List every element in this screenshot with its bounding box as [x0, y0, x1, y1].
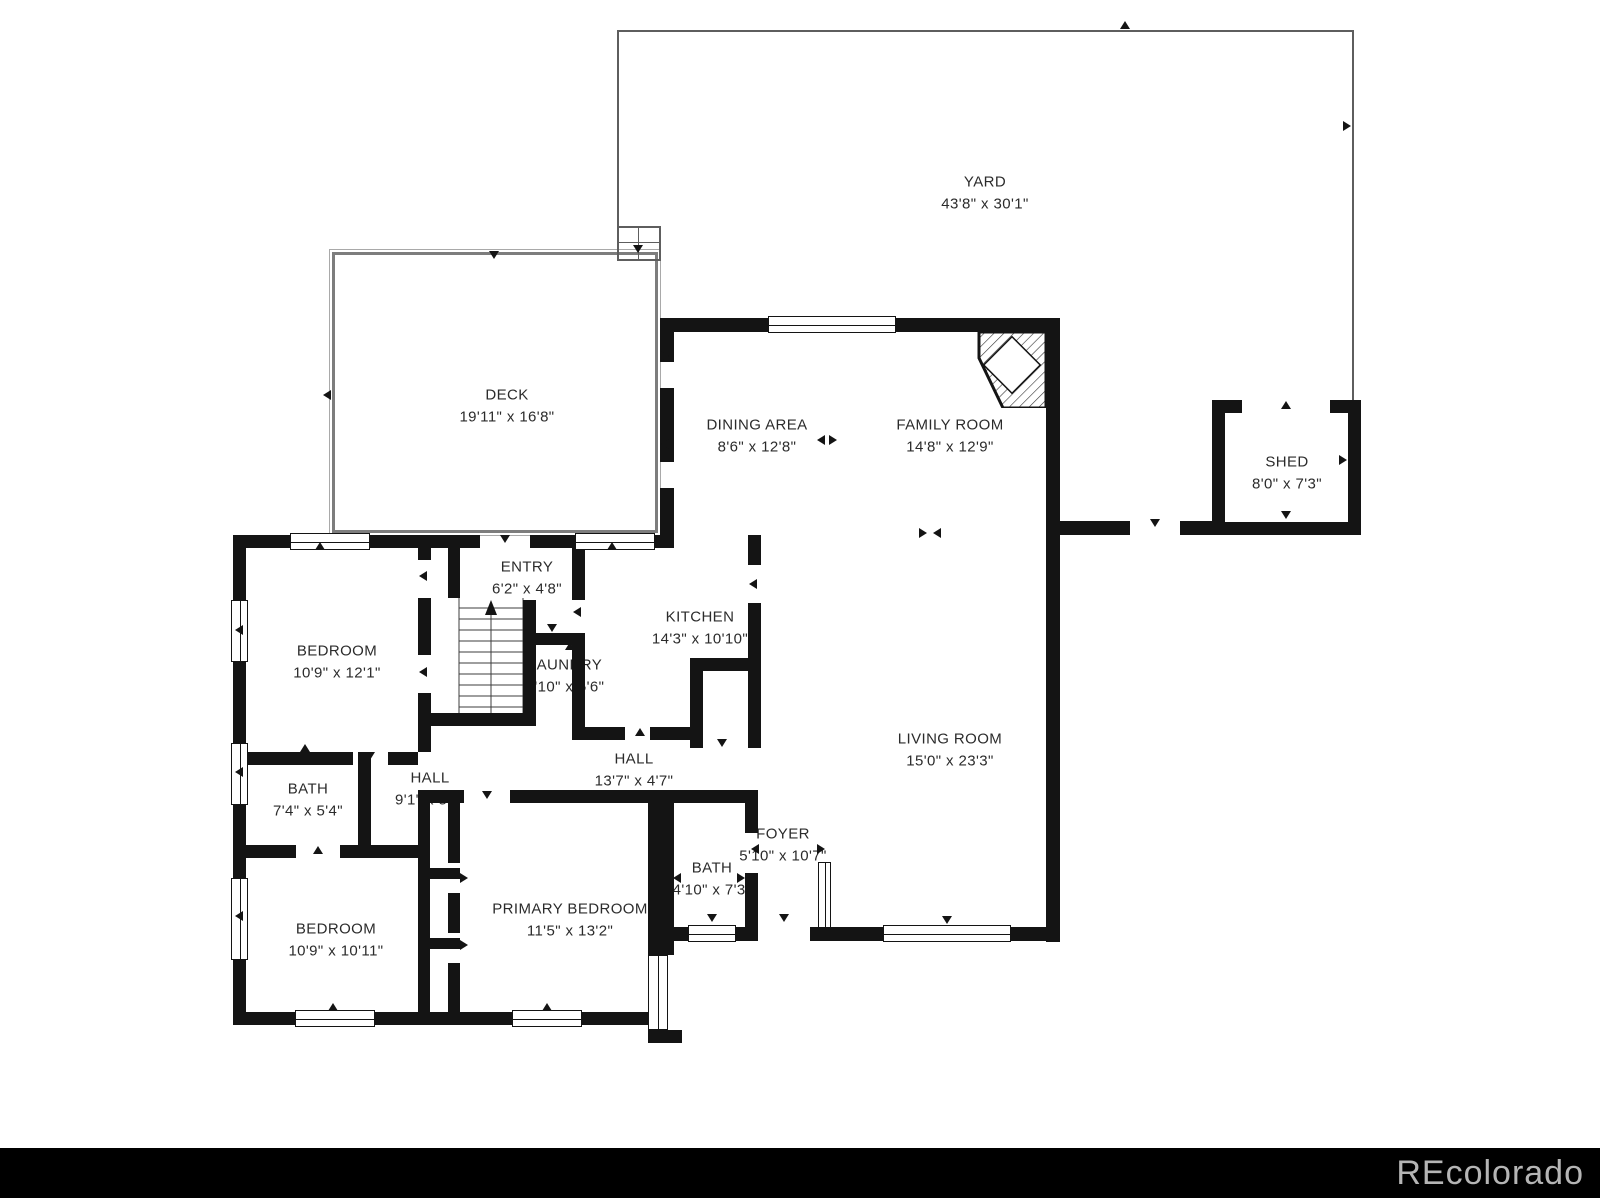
door-marker-left	[419, 667, 427, 677]
room-name: BEDROOM	[237, 640, 437, 662]
room-name: FAMILY ROOM	[830, 414, 1070, 436]
wall-segment	[358, 752, 371, 845]
door-marker-right	[661, 351, 669, 361]
wall-segment	[233, 662, 246, 743]
wall-segment	[736, 927, 758, 941]
wall-segment	[370, 535, 480, 548]
door-marker-left	[573, 607, 581, 617]
wall-segment	[448, 548, 460, 598]
wall-segment	[1212, 522, 1361, 535]
door-marker-up	[1120, 21, 1130, 29]
window	[818, 862, 831, 928]
room-label-laundry: LAUNDRY 5'10" x 5'6"	[500, 654, 630, 698]
wall-segment	[1212, 400, 1225, 535]
yard-outline-line	[617, 226, 661, 228]
wall-segment	[1348, 400, 1361, 535]
wall-segment	[585, 727, 625, 740]
wall-segment	[418, 548, 431, 560]
floorplan-canvas: YARD 43'8" x 30'1" DECK 19'11" x 16'8" D…	[0, 0, 1600, 1200]
room-dims: 19'11" x 16'8"	[402, 406, 612, 428]
wall-segment	[233, 1012, 295, 1025]
wall-segment	[233, 548, 246, 600]
door-marker-up	[328, 1003, 338, 1011]
door-marker-left	[323, 390, 331, 400]
door-marker-left	[419, 571, 427, 581]
room-dims: 10'9" x 10'11"	[236, 940, 436, 962]
door-marker-left	[751, 844, 759, 854]
room-label-family-room: FAMILY ROOM 14'8" x 12'9"	[830, 414, 1070, 458]
wall-segment	[523, 600, 536, 713]
door-marker-down	[717, 739, 727, 747]
room-name: BATH	[238, 778, 378, 800]
door-marker-up	[313, 846, 323, 854]
door-marker-right	[1339, 455, 1347, 465]
door-marker-down	[707, 914, 717, 922]
room-dims: 13'7" x 4'7"	[549, 770, 719, 792]
wall-segment	[745, 803, 758, 833]
room-dims: 14'3" x 10'10"	[600, 628, 800, 650]
yard-outline-line	[638, 226, 639, 261]
door-marker-right	[919, 528, 927, 538]
door-marker-down	[779, 914, 789, 922]
room-label-bath-west: BATH 7'4" x 5'4"	[238, 778, 378, 822]
room-dims: 14'8" x 12'9"	[830, 436, 1070, 458]
door-marker-up	[565, 642, 575, 650]
room-name: LAUNDRY	[500, 654, 630, 676]
yard-outline-line	[617, 242, 661, 243]
door-marker-down	[482, 791, 492, 799]
door-marker-down	[1281, 511, 1291, 519]
door-marker-left	[235, 625, 243, 635]
wall-segment	[418, 598, 431, 655]
wall-segment	[655, 535, 674, 548]
door-marker-right	[1343, 121, 1351, 131]
wall-segment	[448, 893, 460, 933]
room-label-bedroom-lower: BEDROOM 10'9" x 10'11"	[236, 918, 436, 962]
wall-segment	[418, 713, 536, 726]
wall-segment	[418, 868, 460, 879]
door-marker-left	[933, 528, 941, 538]
door-marker-down	[633, 245, 643, 253]
wall-segment	[660, 927, 688, 941]
window	[290, 533, 370, 550]
yard-outline-line	[617, 30, 1354, 32]
wall-segment	[418, 803, 430, 1012]
room-label-kitchen: KITCHEN 14'3" x 10'10"	[600, 606, 800, 650]
window	[512, 1010, 582, 1027]
wall-segment	[510, 790, 660, 803]
wall-segment	[572, 645, 585, 727]
wall-segment	[660, 488, 674, 535]
room-name: KITCHEN	[600, 606, 800, 628]
wall-segment	[418, 938, 460, 949]
door-marker-left	[673, 873, 681, 883]
window	[768, 316, 896, 333]
room-label-deck: DECK 19'11" x 16'8"	[402, 384, 612, 428]
window	[688, 925, 736, 942]
door-marker-down	[489, 251, 499, 259]
wall-segment	[748, 658, 761, 748]
room-dims: 7'4" x 5'4"	[238, 800, 378, 822]
door-marker-left	[661, 439, 669, 449]
wall-segment	[1060, 521, 1130, 535]
door-marker-right	[460, 940, 468, 950]
room-dims: 10'9" x 12'1"	[237, 662, 437, 684]
wall-segment	[748, 535, 761, 565]
watermark-bar: REcolorado	[0, 1148, 1600, 1198]
yard-outline-line	[617, 259, 661, 261]
wall-segment	[233, 535, 290, 548]
wall-segment	[745, 873, 758, 927]
wall-segment	[1180, 521, 1212, 535]
wall-segment	[660, 388, 674, 462]
room-name: HALL	[549, 748, 719, 770]
door-marker-right	[460, 873, 468, 883]
room-label-bedroom-upper: BEDROOM 10'9" x 12'1"	[237, 640, 437, 684]
door-marker-down	[1150, 519, 1160, 527]
room-dims: 8'0" x 7'3"	[1212, 473, 1362, 495]
door-marker-up	[542, 1003, 552, 1011]
door-marker-left	[749, 579, 757, 589]
door-marker-left	[1214, 455, 1222, 465]
wall-segment	[375, 1012, 512, 1025]
wall-segment	[1011, 927, 1060, 941]
wall-segment	[896, 318, 1060, 332]
room-dims: 5'10" x 5'6"	[500, 676, 630, 698]
wall-segment	[572, 548, 585, 600]
door-marker-down	[365, 752, 375, 760]
wall-segment	[340, 845, 420, 858]
wall-segment	[690, 658, 703, 748]
door-marker-up	[300, 744, 310, 752]
room-label-living-room: LIVING ROOM 15'0" x 23'3"	[830, 728, 1070, 772]
wall-segment	[1046, 318, 1060, 942]
wall-segment	[233, 805, 246, 878]
room-dims: 43'8" x 30'1"	[875, 193, 1095, 215]
room-dims: 15'0" x 23'3"	[830, 750, 1070, 772]
door-marker-down	[547, 624, 557, 632]
door-marker-left	[235, 767, 243, 777]
wall-segment	[233, 960, 246, 1012]
door-marker-down	[500, 535, 510, 543]
door-marker-down	[942, 916, 952, 924]
wall-segment	[388, 752, 418, 765]
window	[883, 925, 1011, 942]
door-marker-right	[829, 435, 837, 445]
door-marker-left	[235, 911, 243, 921]
room-name: YARD	[875, 171, 1095, 193]
yard-outline-line	[617, 226, 619, 261]
wall-segment	[660, 790, 758, 803]
window	[295, 1010, 375, 1027]
door-marker-right	[737, 873, 745, 883]
door-marker-right	[817, 844, 825, 854]
room-label-yard: YARD 43'8" x 30'1"	[875, 171, 1095, 215]
door-marker-left	[817, 435, 825, 445]
wall-segment	[233, 845, 296, 858]
room-name: DECK	[402, 384, 612, 406]
wall-segment	[810, 927, 883, 941]
yard-outline-line	[1352, 30, 1354, 402]
door-marker-up	[635, 728, 645, 736]
wall-segment	[748, 603, 761, 658]
watermark-text: REcolorado	[1396, 1154, 1584, 1193]
wall-segment	[650, 727, 690, 740]
wall-segment	[648, 1030, 682, 1043]
door-marker-up	[607, 542, 617, 550]
fireplace-icon	[975, 332, 1046, 408]
wall-segment	[536, 633, 585, 645]
wall-segment	[448, 803, 460, 863]
yard-outline-line	[617, 30, 619, 226]
wall-segment	[448, 963, 460, 1012]
wall-segment	[233, 752, 353, 765]
window	[648, 955, 668, 1030]
wall-segment	[530, 535, 575, 548]
wall-segment	[572, 727, 585, 740]
room-name: LIVING ROOM	[830, 728, 1070, 750]
door-marker-up	[315, 542, 325, 550]
room-name: BEDROOM	[236, 918, 436, 940]
wall-segment	[660, 318, 770, 332]
room-label-hall-center: HALL 13'7" x 4'7"	[549, 748, 719, 792]
yard-outline-line	[659, 226, 661, 261]
door-marker-up	[1281, 401, 1291, 409]
wall-segment	[418, 790, 464, 803]
